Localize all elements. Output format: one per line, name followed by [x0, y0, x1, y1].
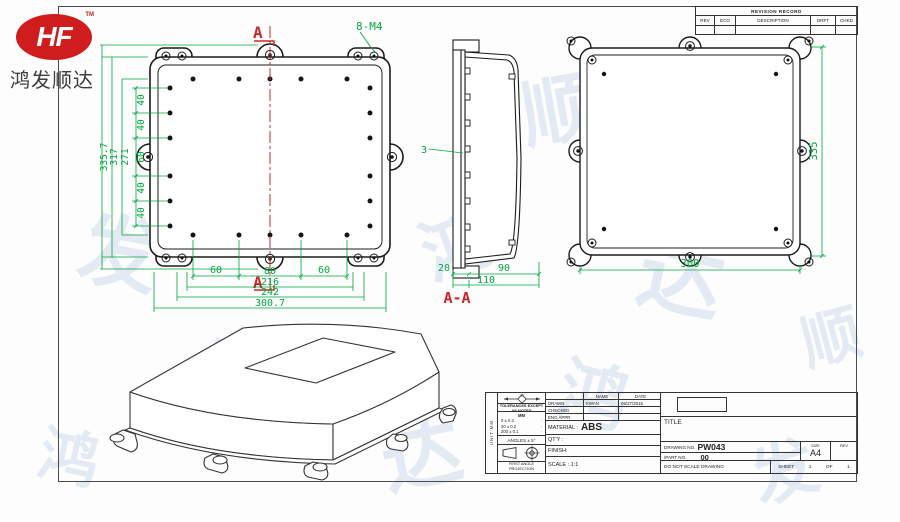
svg-text:271: 271 — [120, 148, 131, 165]
back-height-dim: 335 — [808, 142, 820, 161]
revision-header-row: REV ECO DESCRIPTION DRFT CHKD — [696, 16, 857, 26]
svg-text:40: 40 — [136, 207, 147, 219]
part-no-label: /PART NO. — [664, 455, 686, 460]
drawn-date: 05/27/2015 — [619, 401, 660, 406]
scale-row: SCALE : 1:1 — [546, 457, 660, 473]
front-view-drawing: A A 8-M4 40 40 60 40 40 271 317 335.7 — [98, 18, 410, 323]
dimension-symbol-icon: XX — [502, 393, 542, 403]
tolerance-table: MM 0 ± 0.3· 20 ± 0.2· 200 ± 0.1· — [498, 412, 545, 436]
tolerances-title: TOLERANCES EXCEPT AS NOTED — [498, 404, 545, 412]
logo-mark: HF — [36, 21, 71, 53]
revision-col-eco: ECO — [715, 16, 736, 25]
svg-text:317: 317 — [109, 148, 120, 165]
company-name: 鸿发顺达 — [10, 64, 110, 93]
section-view-drawing: 3 20 90 110 A-A — [413, 28, 548, 313]
approval-column: NAME DATE DRAWN KWAN 05/27/2015 CHECKED … — [546, 393, 661, 473]
dim-symbol-row: XX — [498, 393, 545, 404]
titleblock-logo-row — [661, 393, 857, 417]
tolerance-row: 200 ± 0.1 — [501, 429, 518, 434]
svg-text:335.7: 335.7 — [99, 143, 110, 172]
back-body — [580, 48, 800, 255]
name-header: NAME — [584, 393, 619, 399]
back-view-drawing: 335 300 — [562, 28, 840, 296]
number-row: DRAWING NO. PW043 /PART NO. 00 SIZE A4 R… — [661, 442, 857, 461]
no-scale-note: DO NOT SCALE DRAWING — [661, 461, 771, 473]
date-header: DATE — [619, 394, 660, 399]
bottom-row: DO NOT SCALE DRAWING SHEET 1 OF 1 — [661, 461, 857, 473]
svg-text:60: 60 — [318, 265, 330, 276]
drawn-row: DRAWN KWAN 05/27/2015 — [546, 400, 660, 407]
svg-text:40: 40 — [136, 94, 147, 106]
drawn-name: KWAN — [584, 400, 619, 406]
section-flange — [453, 50, 465, 268]
title-label: TITLE — [661, 417, 857, 442]
sheet-label: SHEET — [778, 465, 794, 470]
name-date-header: NAME DATE — [546, 393, 660, 400]
revision-title: REVISION RECORD — [696, 7, 857, 16]
checked-row: CHECKED — [546, 407, 660, 414]
qty-row: QT'Y : — [546, 435, 660, 446]
projection-symbol-row — [498, 445, 545, 462]
svg-text:90: 90 — [498, 263, 510, 274]
section-marker-top: A — [253, 23, 263, 42]
titleblock-logo-box — [677, 397, 727, 412]
title-column: TITLE DRAWING NO. PW043 /PART NO. 00 SIZ… — [661, 393, 857, 473]
revision-empty-row — [696, 26, 857, 35]
trademark-symbol: TM — [85, 12, 94, 18]
svg-text:20: 20 — [438, 263, 450, 274]
svg-text:110: 110 — [477, 275, 495, 286]
units-note: UNIT:MM — [489, 420, 494, 445]
material-value: ABS — [581, 422, 602, 433]
first-angle-projection-icon — [500, 446, 544, 460]
finish-row: FINISH: — [546, 446, 660, 457]
company-logo: HF TM 鸿发顺达 — [10, 12, 110, 97]
of-label: OF — [826, 465, 833, 470]
revision-col-drft: DRFT — [811, 16, 836, 25]
back-width-dim: 300 — [681, 258, 700, 270]
sheet-number: 1 — [809, 465, 812, 470]
drawing-no-label: DRAWING NO. — [664, 445, 695, 450]
section-label: A-A — [443, 289, 470, 307]
svg-text:40: 40 — [136, 119, 147, 131]
svg-text:60: 60 — [210, 265, 222, 276]
section-outer-wall — [465, 52, 521, 264]
svg-text:300.7: 300.7 — [255, 298, 285, 309]
revision-col-description: DESCRIPTION — [736, 16, 811, 25]
size-box: SIZE A4 — [801, 442, 831, 460]
wall-dim-label: 3 — [421, 145, 427, 156]
revision-col-rev: REV — [696, 16, 715, 25]
thread-note: 8-M4 — [356, 20, 383, 33]
units-strip: UNIT:MM — [486, 393, 498, 473]
rev-box: REV — [831, 442, 857, 460]
sheet-total: 1 — [847, 465, 850, 470]
drawing-no-value: PW043 — [697, 442, 725, 452]
size-value: A4 — [810, 448, 821, 458]
checked-label: CHECKED — [546, 407, 584, 413]
svg-text:242: 242 — [261, 287, 279, 298]
projection-label: FIRST ANGLE PROJECTION — [498, 462, 545, 470]
tolerance-column: XX TOLERANCES EXCEPT AS NOTED MM 0 ± 0.3… — [498, 393, 546, 473]
svg-text:40: 40 — [136, 182, 147, 194]
svg-text:80: 80 — [264, 266, 276, 277]
eng-appr-row: ENG APPR — [546, 414, 660, 421]
sheet-info: SHEET 1 OF 1 — [771, 461, 857, 473]
revision-col-chkd: CHKD — [836, 16, 857, 25]
title-block: UNIT:MM XX TOLERANCES EXCEPT AS NOTED MM… — [485, 392, 858, 474]
eng-appr-label: ENG APPR — [546, 414, 584, 420]
isometric-view-drawing — [95, 312, 465, 490]
logo-ellipse: HF TM — [16, 14, 92, 60]
angles-tolerance: ANGLES ± 5° — [498, 436, 545, 445]
drawn-label: DRAWN — [546, 400, 584, 406]
material-label: MATERIAL : — [548, 425, 578, 431]
material-row: MATERIAL : ABS — [546, 421, 660, 435]
revision-table: REVISION RECORD REV ECO DESCRIPTION DRFT… — [695, 6, 858, 35]
svg-text:60: 60 — [136, 151, 147, 163]
drawing-no-row: DRAWING NO. PW043 — [661, 442, 800, 453]
